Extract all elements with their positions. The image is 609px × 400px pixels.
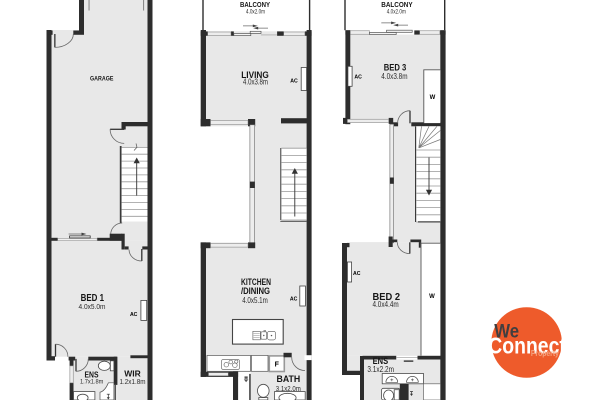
svg-text:AC: AC: [290, 78, 298, 84]
svg-text:4.0x2.0m: 4.0x2.0m: [246, 8, 265, 15]
svg-text:/DINING: /DINING: [241, 286, 270, 296]
svg-text:4.0x2.0m: 4.0x2.0m: [387, 8, 406, 15]
svg-text:3.1x2.0m: 3.1x2.0m: [276, 384, 301, 393]
svg-text:3.1x2.2m: 3.1x2.2m: [367, 365, 394, 374]
svg-text:1.2x1.8m: 1.2x1.8m: [120, 377, 146, 386]
svg-text:F: F: [275, 362, 280, 369]
svg-text:4.0x5.1m: 4.0x5.1m: [242, 296, 268, 305]
svg-text:4.0x3.8m: 4.0x3.8m: [381, 72, 407, 81]
svg-text:4.0x3.8m: 4.0x3.8m: [243, 78, 268, 87]
svg-text:AC: AC: [130, 312, 138, 318]
svg-text:W: W: [430, 95, 436, 101]
svg-text:AC: AC: [353, 271, 361, 277]
svg-text:BATH: BATH: [277, 374, 301, 384]
svg-text:W: W: [429, 294, 435, 300]
svg-text:4.0x5.0m: 4.0x5.0m: [79, 302, 106, 311]
svg-text:GARAGE: GARAGE: [90, 75, 114, 82]
svg-text:4.0x4.4m: 4.0x4.4m: [372, 300, 398, 309]
svg-text:AC: AC: [354, 74, 362, 80]
svg-text:AC: AC: [290, 297, 298, 303]
svg-text:1.7x1.8m: 1.7x1.8m: [80, 379, 103, 386]
svg-text:Property: Property: [531, 349, 559, 358]
